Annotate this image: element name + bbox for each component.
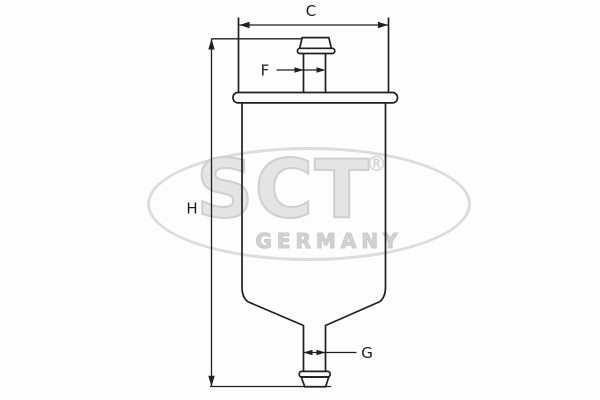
- flange: [233, 93, 398, 103]
- dimension-f-arrow-left: [295, 67, 304, 72]
- dimension-f-arrow-right: [317, 67, 326, 72]
- dimension-f-label: F: [261, 62, 270, 80]
- dimension-g-arrow-right: [317, 350, 326, 355]
- dimension-c-arrow-right: [378, 22, 388, 28]
- filter-outline: [233, 18, 398, 387]
- dimension-h-label: H: [186, 200, 197, 218]
- technical-diagram-page: SCT ® GERMANY C H F: [0, 0, 600, 400]
- inlet-barb: [300, 38, 332, 49]
- dimension-h-arrow-top: [208, 39, 214, 50]
- dimension-c-label: C: [306, 2, 316, 20]
- dimension-c: C: [240, 2, 389, 28]
- body-right-wall: [326, 103, 386, 372]
- dimension-h-arrow-bottom: [208, 376, 214, 387]
- dimension-c-arrow-left: [240, 22, 250, 28]
- dimension-h: H: [186, 39, 331, 387]
- inlet-collar: [297, 48, 334, 53]
- body-left-wall: [242, 103, 304, 372]
- dimension-f: F: [261, 62, 326, 80]
- dimension-g-arrow-left: [304, 350, 313, 355]
- outlet-barb: [301, 377, 329, 387]
- dimension-g: G: [304, 344, 373, 362]
- dimension-g-label: G: [361, 344, 373, 362]
- fuel-filter-drawing: C H F G: [0, 0, 600, 400]
